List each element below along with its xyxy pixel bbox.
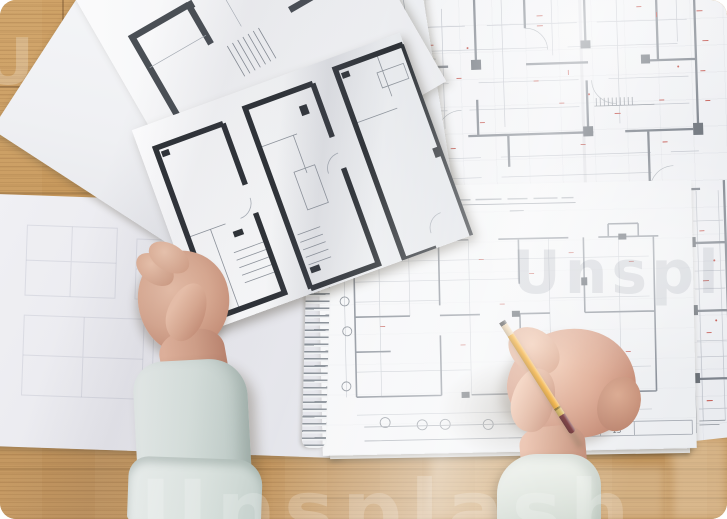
left-sleeve-cuff <box>127 456 263 519</box>
spiral-binding <box>302 272 331 449</box>
desk-photo: 13 <box>0 0 727 519</box>
right-sleeve-cuff <box>497 454 601 519</box>
